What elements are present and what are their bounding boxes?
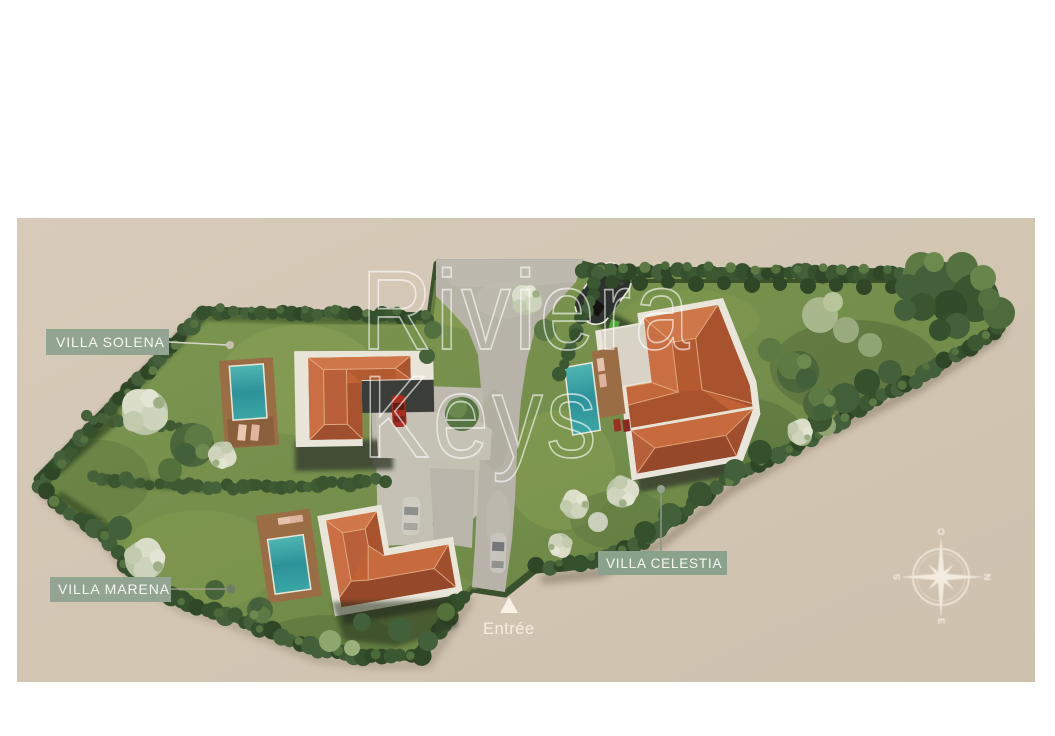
svg-text:S: S	[892, 574, 903, 580]
svg-text:O: O	[937, 527, 944, 538]
svg-text:VILLA MARENA: VILLA MARENA	[58, 581, 170, 597]
svg-text:E: E	[935, 618, 946, 624]
svg-text:Keys: Keys	[362, 351, 600, 482]
svg-text:Entrée: Entrée	[483, 620, 535, 638]
svg-text:VILLA CELESTIA: VILLA CELESTIA	[606, 556, 722, 571]
svg-text:VILLA SOLENA: VILLA SOLENA	[56, 334, 165, 350]
svg-text:N: N	[981, 574, 992, 581]
